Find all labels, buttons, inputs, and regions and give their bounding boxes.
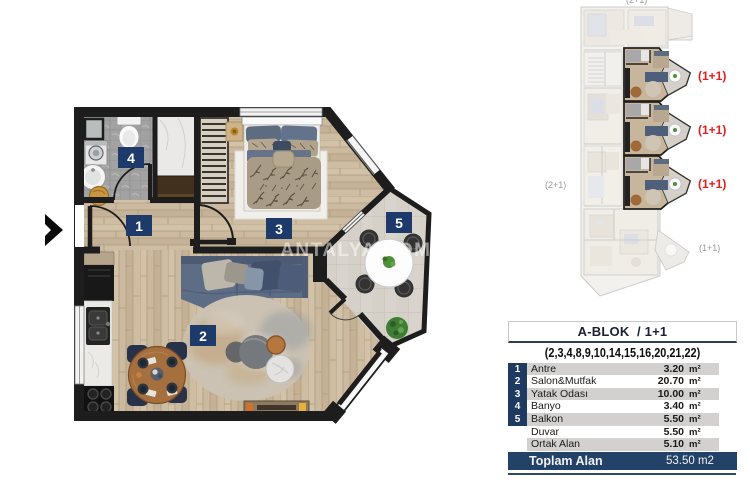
svg-text:4: 4 xyxy=(127,150,135,166)
svg-text:5: 5 xyxy=(395,215,403,231)
svg-text:(1+1): (1+1) xyxy=(698,69,726,83)
svg-text:3: 3 xyxy=(275,221,283,237)
svg-text:ANTALYA HOMES: ANTALYA HOMES xyxy=(280,240,460,261)
svg-text:(1+1): (1+1) xyxy=(699,243,720,253)
svg-text:(1+1): (1+1) xyxy=(698,123,726,137)
svg-text:1: 1 xyxy=(135,218,143,234)
svg-text:(2+1): (2+1) xyxy=(626,0,647,5)
svg-text:(1+1): (1+1) xyxy=(698,177,726,191)
svg-text:(2+1): (2+1) xyxy=(545,180,566,190)
svg-text:2: 2 xyxy=(199,328,207,344)
